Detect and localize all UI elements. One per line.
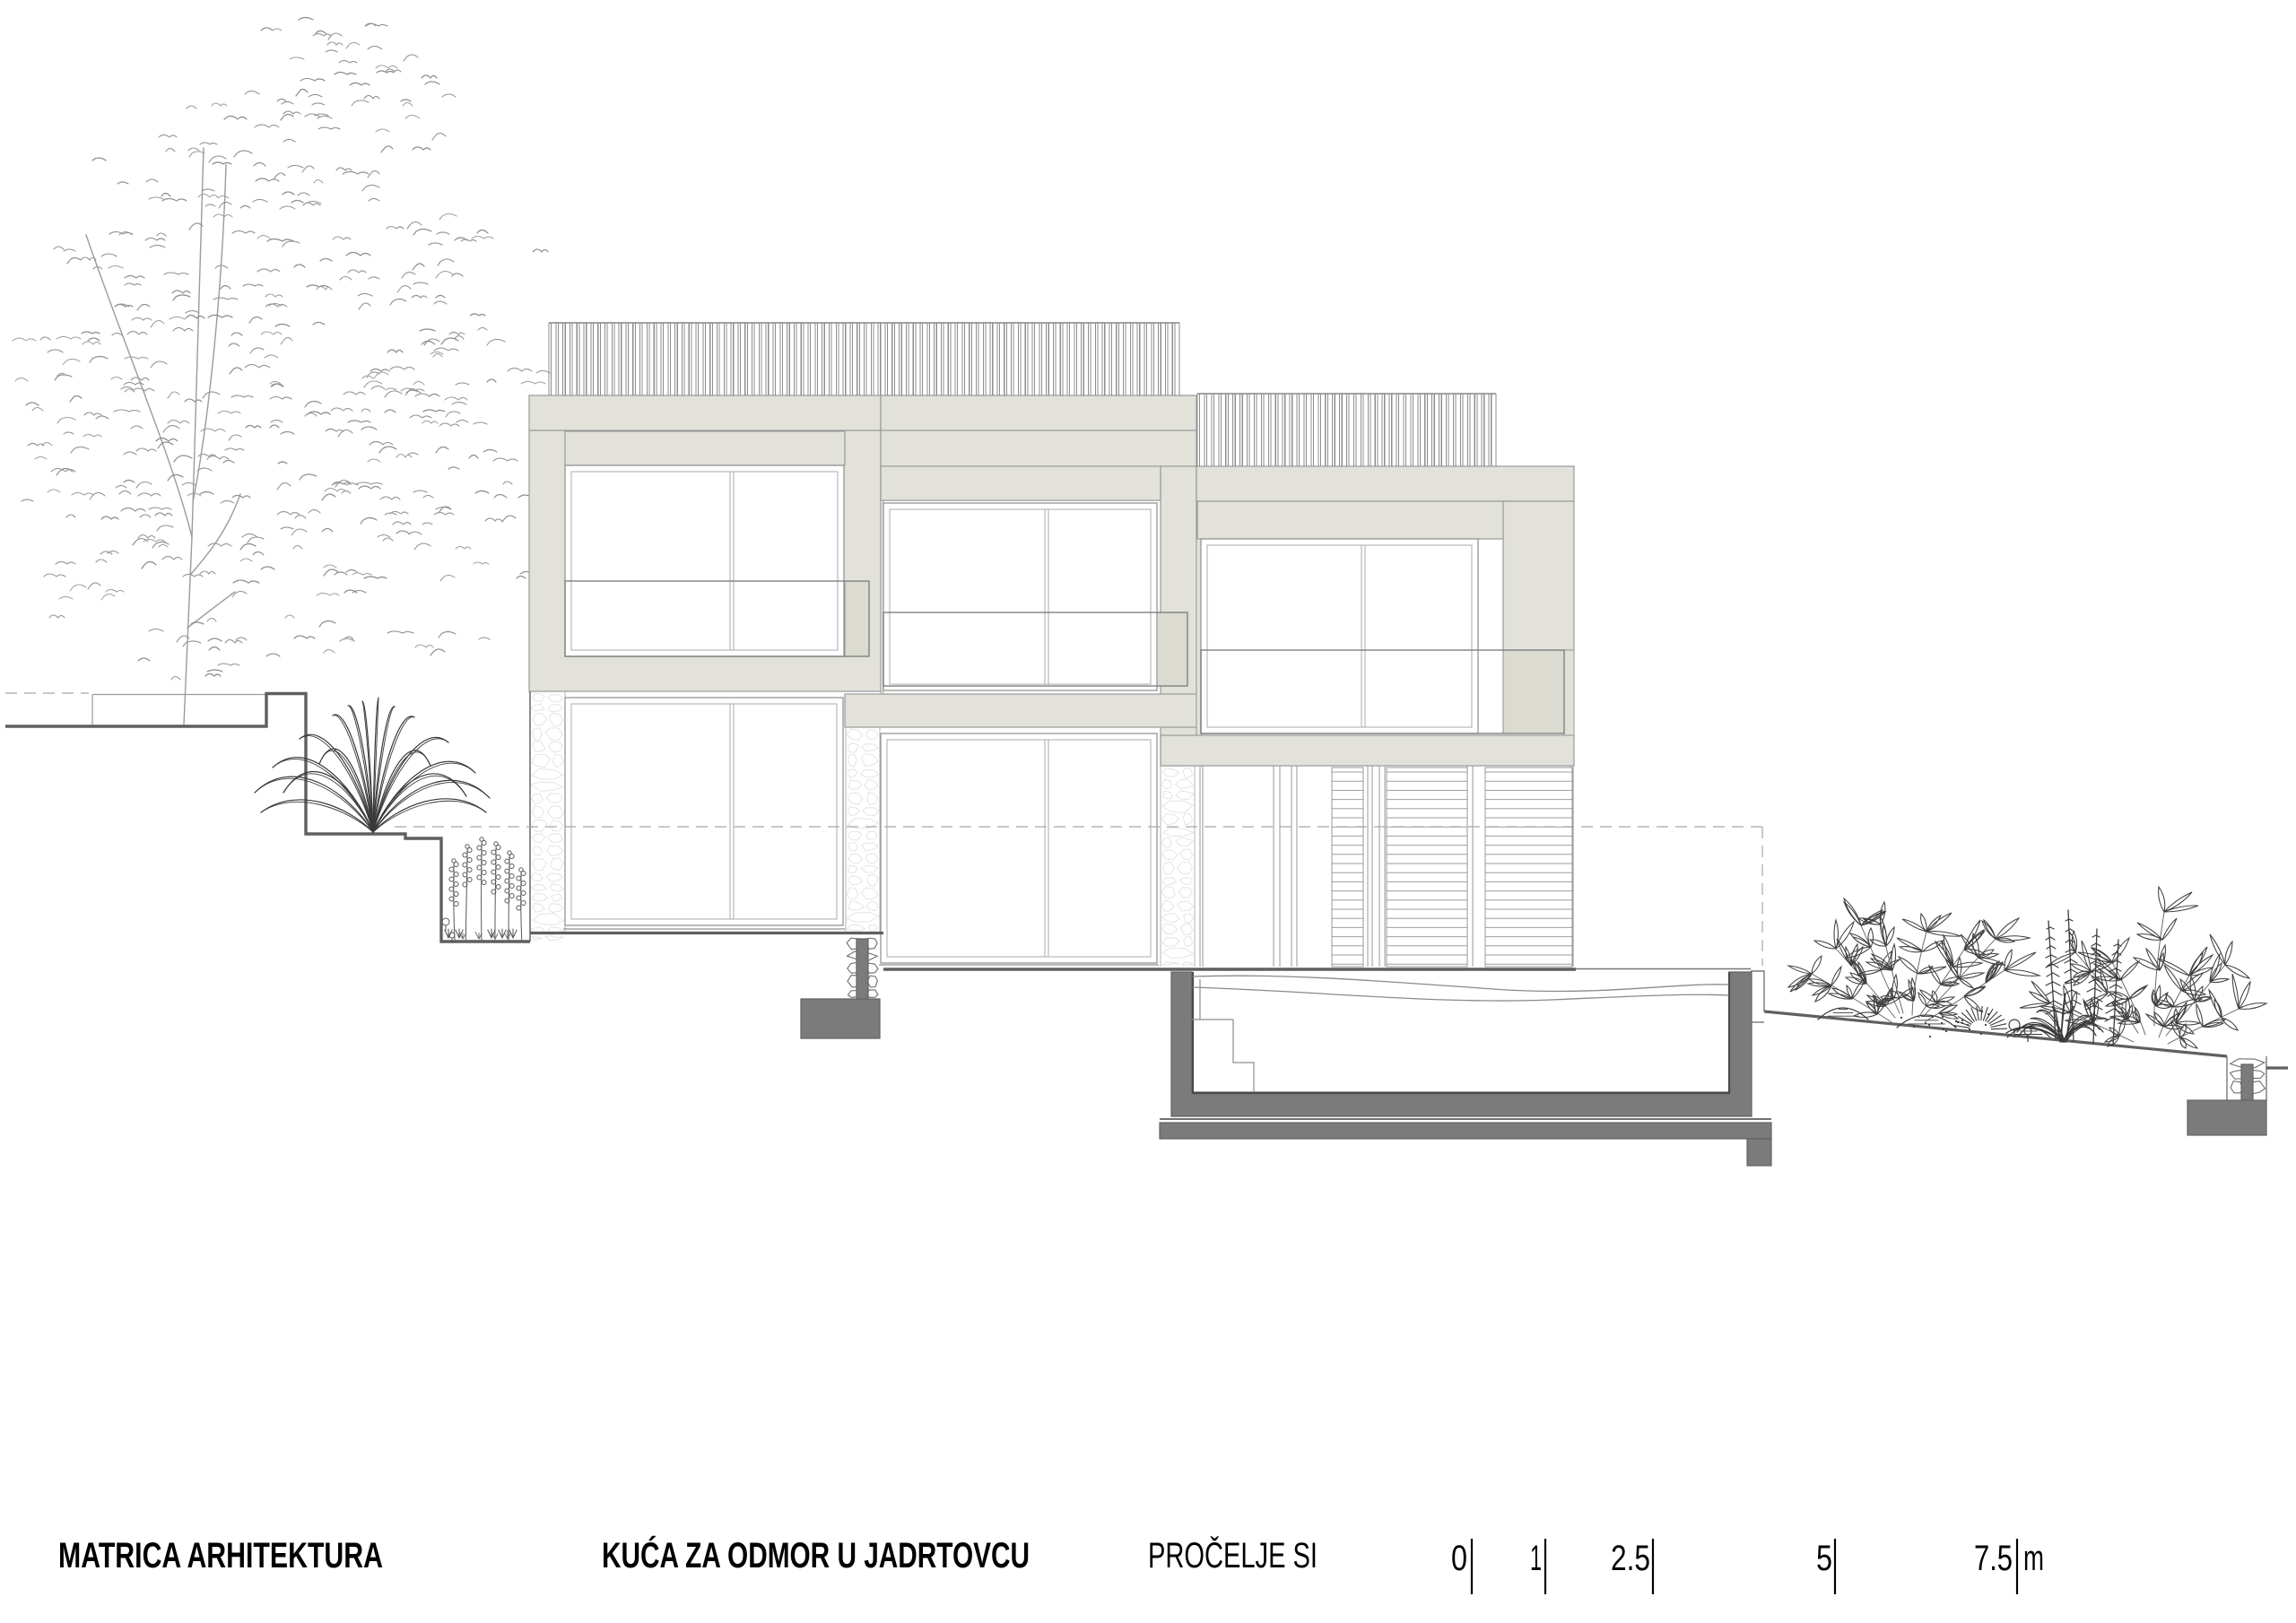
svg-text:MATRICA ARHITEKTURA: MATRICA ARHITEKTURA: [58, 1536, 383, 1575]
svg-text:5: 5: [1816, 1539, 1832, 1578]
svg-text:PROČELJE SI: PROČELJE SI: [1148, 1535, 1318, 1575]
svg-text:7.5: 7.5: [1974, 1539, 2013, 1578]
svg-text:0: 0: [1451, 1539, 1467, 1578]
svg-text:KUĆA ZA ODMOR U JADRTOVCU: KUĆA ZA ODMOR U JADRTOVCU: [602, 1534, 1030, 1575]
svg-text:2.5: 2.5: [1611, 1539, 1650, 1578]
svg-text:m: m: [2023, 1539, 2044, 1578]
svg-text:1: 1: [1530, 1539, 1542, 1578]
